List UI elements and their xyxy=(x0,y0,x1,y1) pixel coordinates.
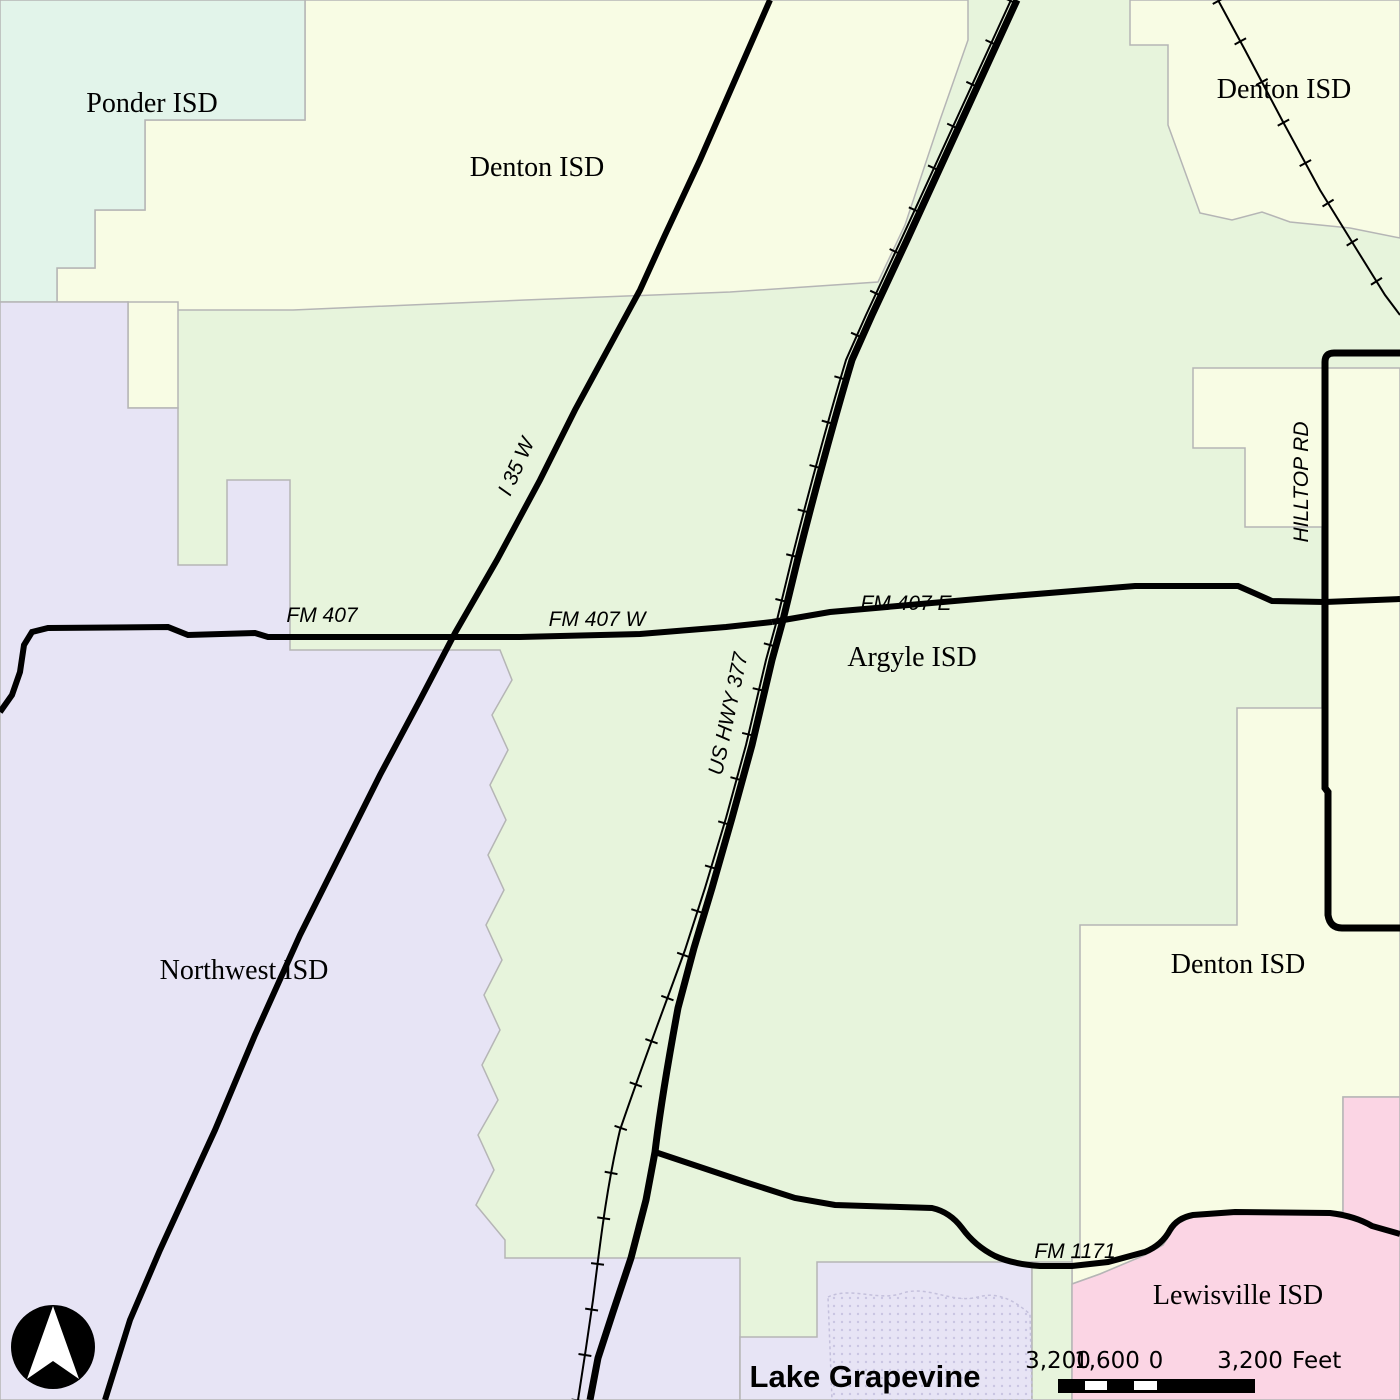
scalebar-tick-zero: 0 xyxy=(1149,1348,1164,1374)
scalebar-unit: Feet xyxy=(1292,1348,1341,1374)
region-denton-isd-column xyxy=(128,302,178,408)
label-road-fm407: FM 407 xyxy=(286,604,357,628)
label-lewisville-isd: Lewisville ISD xyxy=(1153,1280,1323,1312)
label-road-hilltop: HILLTOP RD xyxy=(1290,422,1314,543)
label-lake-grapevine: Lake Grapevine xyxy=(750,1359,981,1395)
label-ponder-isd: Ponder ISD xyxy=(86,88,217,120)
label-road-fm1171: FM 1171 xyxy=(1034,1240,1115,1264)
label-northwest-isd: Northwest ISD xyxy=(160,955,329,987)
district-map[interactable]: Ponder ISD Denton ISD Denton ISD Argyle … xyxy=(0,0,1400,1400)
north-arrow-icon xyxy=(7,1301,99,1393)
scalebar-tick-right: 3,200 xyxy=(1217,1348,1283,1374)
label-road-fm407e: FM 407 E xyxy=(860,592,951,616)
scalebar-tick-mid: 1,600 xyxy=(1074,1348,1140,1374)
scalebar-gap-segment xyxy=(1134,1381,1157,1390)
label-denton-isd-ne: Denton ISD xyxy=(1217,74,1352,106)
scalebar xyxy=(1058,1379,1255,1393)
scalebar-gap-segment xyxy=(1085,1381,1107,1390)
map-canvas xyxy=(0,0,1400,1400)
label-road-fm407w: FM 407 W xyxy=(549,608,646,632)
label-argyle-isd: Argyle ISD xyxy=(847,642,976,674)
label-denton-isd-top: Denton ISD xyxy=(470,152,605,184)
label-denton-isd-se: Denton ISD xyxy=(1171,949,1306,981)
